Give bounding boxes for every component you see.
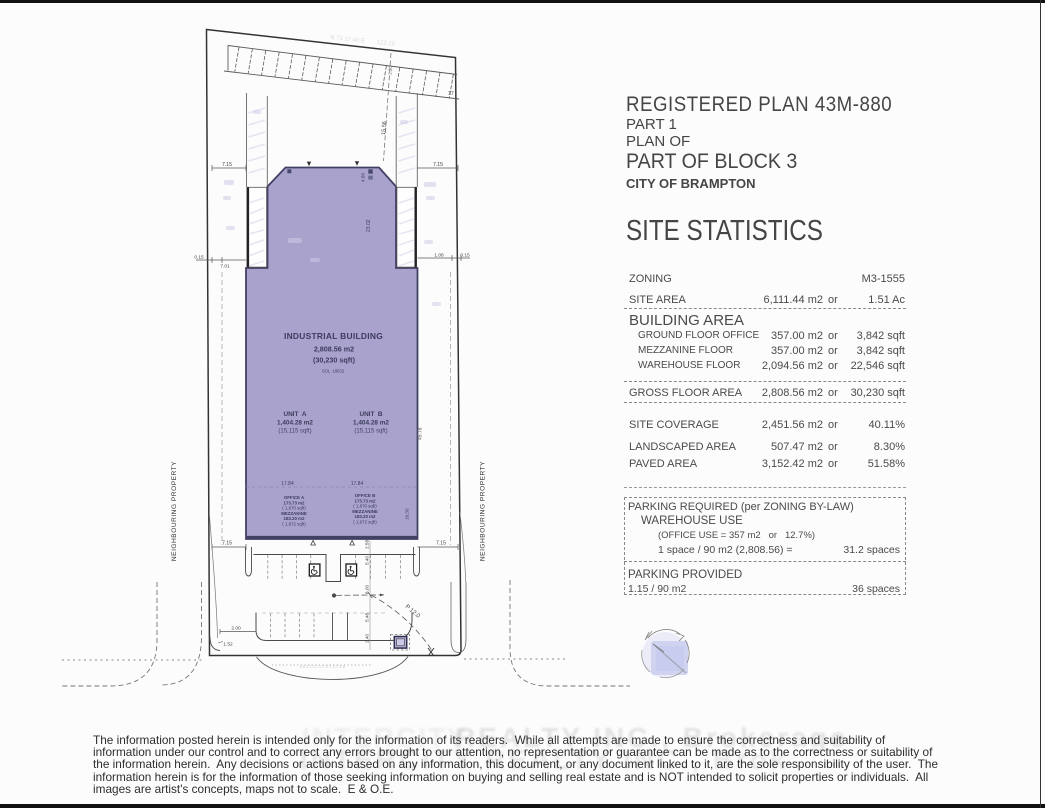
- svg-text:2.00: 2.00: [231, 626, 241, 632]
- svg-text:INDUSTRIAL BUILDING: INDUSTRIAL BUILDING: [284, 331, 383, 341]
- svg-text:MEZZANINE: MEZZANINE: [281, 511, 307, 516]
- svg-text:1.52: 1.52: [223, 642, 233, 648]
- svg-text:17.84: 17.84: [281, 481, 294, 487]
- svg-text:0.15: 0.15: [194, 255, 204, 261]
- svg-text:173.73 m2: 173.73 m2: [355, 498, 377, 503]
- svg-text:1.5 2.7 2.7 2.7 2.7 2.7 1.5: 1.5 2.7 2.7 2.7 2.7 2.7 1.5: [299, 664, 345, 669]
- svg-text:( 1,972 sqft): ( 1,972 sqft): [282, 522, 306, 527]
- svg-text:2.50: 2.50: [388, 65, 394, 75]
- svg-text:1,404.28 m2: 1,404.28 m2: [277, 420, 313, 427]
- svg-text:( 1,870 sqft): ( 1,870 sqft): [353, 504, 377, 509]
- svg-text:(30,230 sqft): (30,230 sqft): [313, 356, 356, 365]
- svg-text:( 1,870 sqft): ( 1,870 sqft): [282, 506, 306, 511]
- svg-text:23.02: 23.02: [366, 219, 372, 232]
- svg-text:5.48: 5.48: [365, 612, 370, 622]
- svg-text:45.78: 45.78: [418, 427, 424, 440]
- svg-text:7.15: 7.15: [433, 162, 443, 168]
- svg-text:NEIGHBOURING PROPERTY: NEIGHBOURING PROPERTY: [171, 461, 178, 561]
- svg-text:OFFICE B: OFFICE B: [355, 493, 376, 498]
- svg-text:1,404.28 m2: 1,404.28 m2: [353, 420, 389, 427]
- svg-text:MEZZANINE: MEZZANINE: [352, 509, 378, 514]
- svg-text:4.88: 4.88: [361, 173, 366, 182]
- svg-text:NEIGHBOURING PROPERTY: NEIGHBOURING PROPERTY: [480, 461, 487, 561]
- svg-text:1.08: 1.08: [434, 253, 444, 259]
- svg-text:2.58: 2.58: [365, 539, 370, 549]
- svg-text:UNIT A: UNIT A: [283, 411, 306, 418]
- svg-text:(15,115 sqft): (15,115 sqft): [354, 429, 387, 435]
- svg-text:183.20 m2: 183.20 m2: [284, 516, 306, 521]
- svg-text:( 1,972 sqft): ( 1,972 sqft): [353, 520, 377, 525]
- svg-text:0.15: 0.15: [460, 253, 470, 259]
- svg-text:5.40: 5.40: [365, 555, 370, 565]
- svg-text:17: 17: [448, 91, 454, 97]
- svg-text:6.00: 6.00: [365, 584, 370, 594]
- svg-text:(15,115 sqft): (15,115 sqft): [278, 429, 311, 435]
- svg-text:7.01: 7.01: [220, 264, 230, 270]
- svg-text:OFFICE A: OFFICE A: [284, 495, 305, 500]
- svg-text:7.15: 7.15: [222, 541, 232, 547]
- svg-text:7.15: 7.15: [222, 162, 232, 168]
- svg-text:183.20 m2: 183.20 m2: [355, 514, 377, 519]
- svg-text:15.56: 15.56: [381, 121, 388, 135]
- svg-text:SOL 18632: SOL 18632: [322, 369, 345, 374]
- svg-text:7.15: 7.15: [436, 541, 446, 547]
- svg-text:2.40: 2.40: [365, 633, 370, 643]
- svg-text:17.84: 17.84: [351, 481, 364, 487]
- svg-text:2,808.56 m2: 2,808.56 m2: [314, 345, 354, 354]
- svg-text:173.73 m2: 173.73 m2: [284, 500, 306, 505]
- svg-text:18.30: 18.30: [405, 508, 410, 520]
- svg-text:N 73 17 40 E 122.10: N 73 17 40 E 122.10: [330, 35, 396, 48]
- svg-text:UNIT B: UNIT B: [359, 411, 382, 418]
